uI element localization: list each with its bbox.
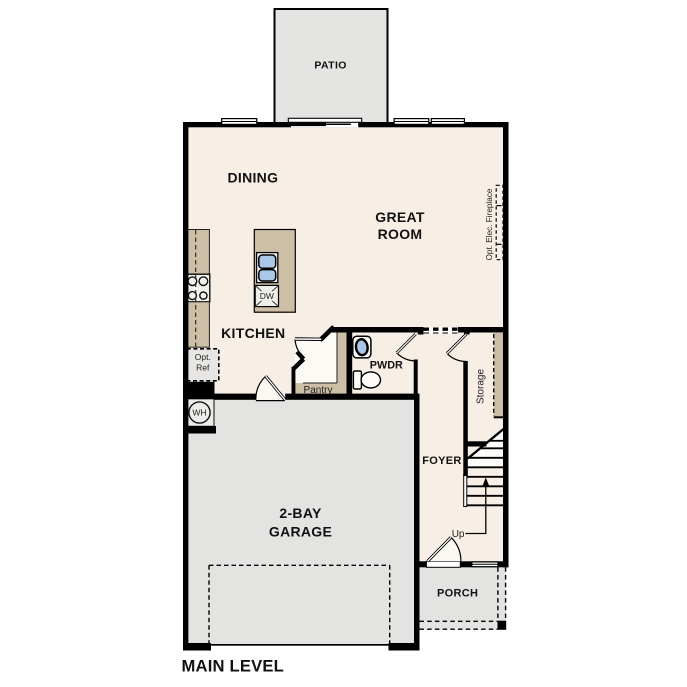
svg-text:Opt.: Opt. xyxy=(195,352,211,362)
svg-text:KITCHEN: KITCHEN xyxy=(221,325,285,341)
svg-text:DW: DW xyxy=(260,291,274,301)
svg-text:GREAT: GREAT xyxy=(375,209,425,225)
svg-text:MAIN LEVEL: MAIN LEVEL xyxy=(182,657,285,676)
svg-text:PATIO: PATIO xyxy=(314,59,347,71)
svg-text:ROOM: ROOM xyxy=(378,226,423,242)
svg-text:GARAGE: GARAGE xyxy=(269,524,332,540)
svg-text:Up: Up xyxy=(452,529,465,540)
svg-text:WH: WH xyxy=(192,408,206,418)
svg-text:2-BAY: 2-BAY xyxy=(279,505,322,521)
svg-text:PWDR: PWDR xyxy=(370,359,403,371)
svg-text:Ref: Ref xyxy=(196,363,210,373)
svg-text:Opt. Elec. Fireplace: Opt. Elec. Fireplace xyxy=(485,188,494,260)
svg-text:Storage: Storage xyxy=(475,369,486,404)
svg-text:PORCH: PORCH xyxy=(437,587,478,599)
svg-text:FOYER: FOYER xyxy=(422,455,461,467)
svg-text:DINING: DINING xyxy=(227,169,278,185)
